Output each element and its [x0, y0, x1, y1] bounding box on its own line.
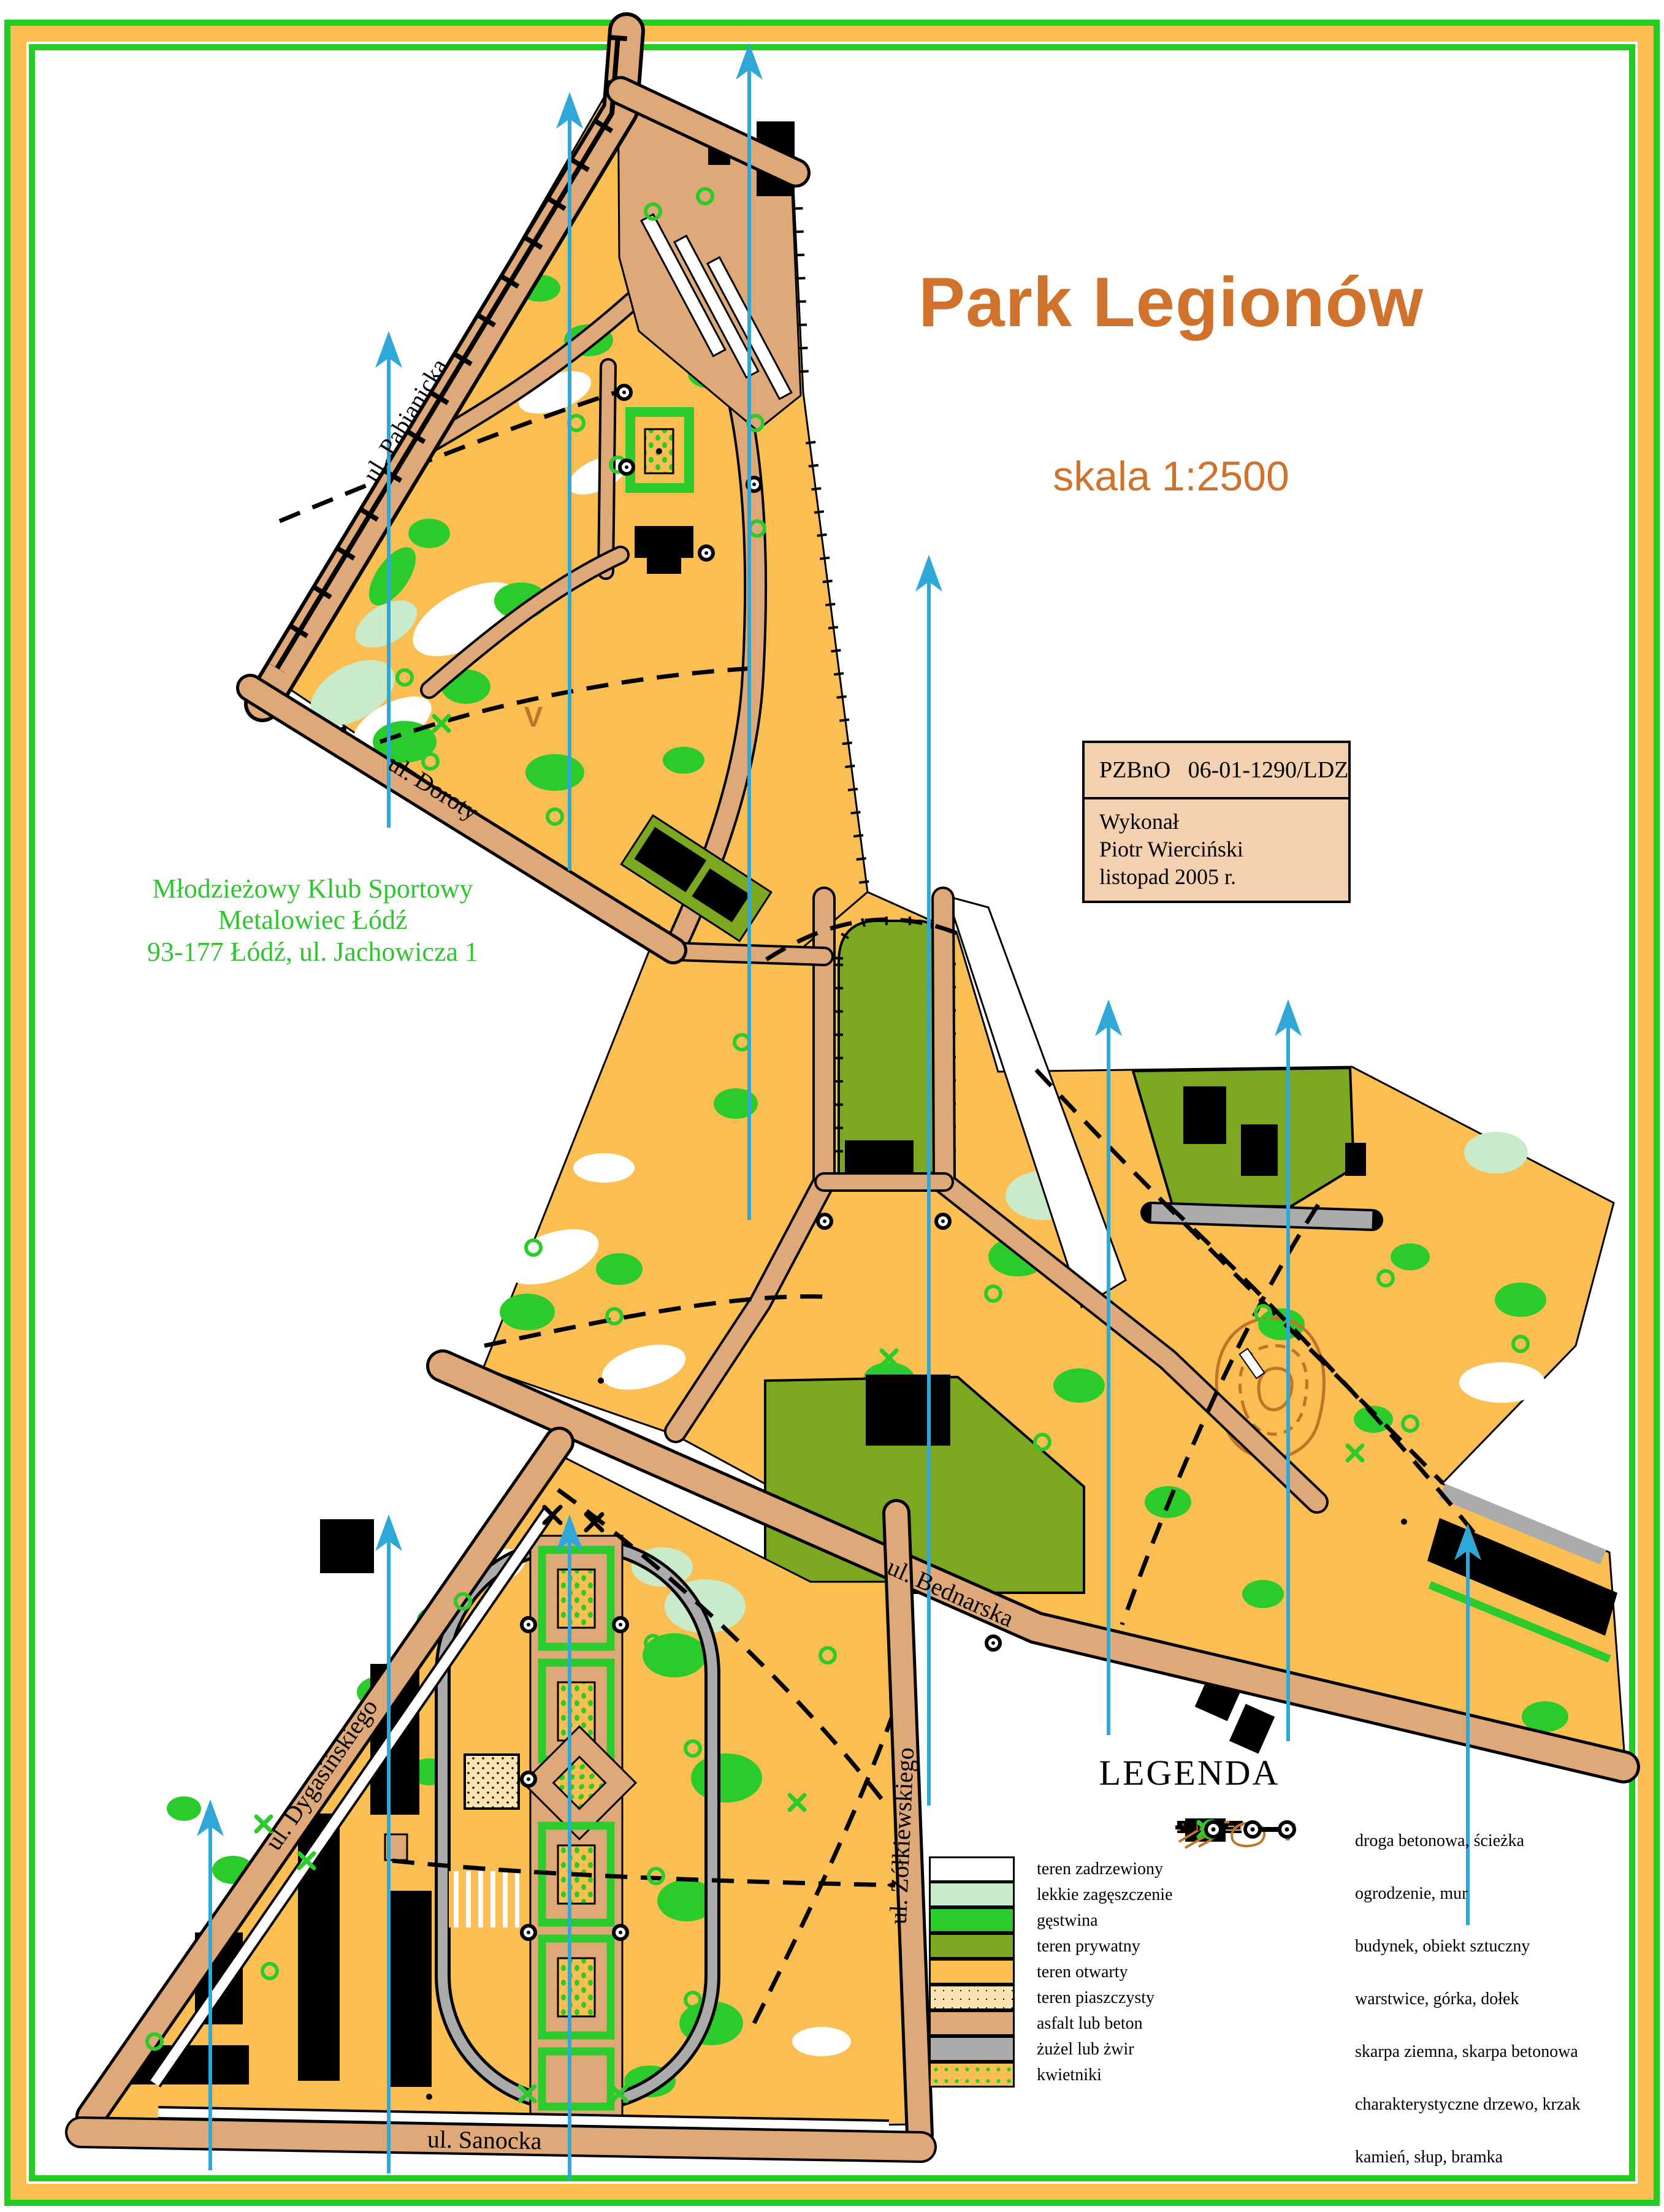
- area-swatch-wooded: [929, 1856, 1015, 1882]
- pit-icon: V: [524, 701, 543, 733]
- area-swatch-open: [929, 1959, 1015, 1985]
- club-line-2: Metalowiec Łódź: [104, 904, 521, 936]
- legend-symbol-item: kamień, słup, bramka: [1174, 2131, 1581, 2184]
- legend-symbol-item: ogrodzenie, mur: [1174, 1867, 1581, 1920]
- legend-area-item: teren otwarty: [929, 1959, 1173, 1985]
- legend-title: LEGENDA: [1006, 1752, 1373, 1793]
- legend-area-item: gęstwina: [929, 1908, 1173, 1934]
- scale-label: skala 1:2500: [907, 452, 1435, 500]
- legend-symbol-list: droga betonowa, ścieżka ogrodzenie, mur …: [1174, 1815, 1581, 2184]
- made-by-label: Wykonał: [1099, 808, 1342, 836]
- plantation: [449, 1871, 519, 1928]
- author-block: Wykonał Piotr Wierciński listopad 2005 r…: [1085, 799, 1348, 901]
- legend-area-item: teren zadrzewiony: [929, 1856, 1173, 1882]
- legend-area-item: kwietniki: [929, 2062, 1173, 2088]
- building: [866, 1375, 950, 1446]
- building: [1229, 1704, 1275, 1753]
- legend-symbol-item: skarpa ziemna, skarpa betonowa: [1174, 2026, 1581, 2078]
- author-name: Piotr Wierciński: [1099, 836, 1342, 863]
- stone-pole-gate-icon: [1174, 1815, 1327, 1844]
- building: [1183, 1086, 1226, 1144]
- legend-area-item: asfalt lub beton: [929, 2011, 1173, 2037]
- legend-area-item: teren prywatny: [929, 1934, 1173, 1959]
- legend-symbol-item: V warstwice, górka, dołek: [1174, 1973, 1581, 2026]
- legend-area-list: teren zadrzewiony lekkie zagęszczenie gę…: [929, 1856, 1173, 2088]
- area-swatch-private: [929, 1933, 1015, 1959]
- area-swatch-thicket: [929, 1907, 1015, 1933]
- area-swatch-flowerbeds: [929, 2062, 1015, 2088]
- club-line-1: Młodzieżowy Klub Sportowy: [104, 873, 521, 904]
- club-line-3: 93-177 Łódź, ul. Jachowicza 1: [104, 936, 521, 967]
- legend-symbol-item: charakterystyczne drzewo, krzak: [1174, 2078, 1581, 2131]
- club-address: Młodzieżowy Klub Sportowy Metalowiec Łód…: [104, 873, 521, 967]
- area-swatch-light-density: [929, 1882, 1015, 1907]
- map-date: listopad 2005 r.: [1099, 863, 1342, 891]
- area-swatch-sandy: [929, 1985, 1015, 2010]
- area-swatch-gravel: [929, 2036, 1015, 2062]
- legend-area-item: żużel lub żwir: [929, 2037, 1173, 2062]
- registry-number: PZBnO 06-01-1290/LDZ: [1085, 743, 1348, 799]
- page-title: Park Legionów: [907, 262, 1435, 343]
- sand-playground: [465, 1755, 519, 1809]
- orienteering-map-page: { "page": { "title": "Park Legionów", "s…: [0, 0, 1664, 2212]
- street-label-sanocka: ul. Sanocka: [427, 2126, 543, 2155]
- building: [1241, 1124, 1278, 1176]
- legend-symbol-item: budynek, obiekt sztuczny: [1174, 1920, 1581, 1973]
- building: [1345, 1143, 1366, 1176]
- registration-box: PZBnO 06-01-1290/LDZ Wykonał Piotr Wierc…: [1082, 741, 1351, 903]
- legend-area-item: lekkie zagęszczenie: [929, 1882, 1173, 1908]
- area-swatch-asphalt: [929, 2010, 1015, 2036]
- legend-area-item: teren piaszczysty: [929, 1985, 1173, 2011]
- building: [845, 1140, 914, 1175]
